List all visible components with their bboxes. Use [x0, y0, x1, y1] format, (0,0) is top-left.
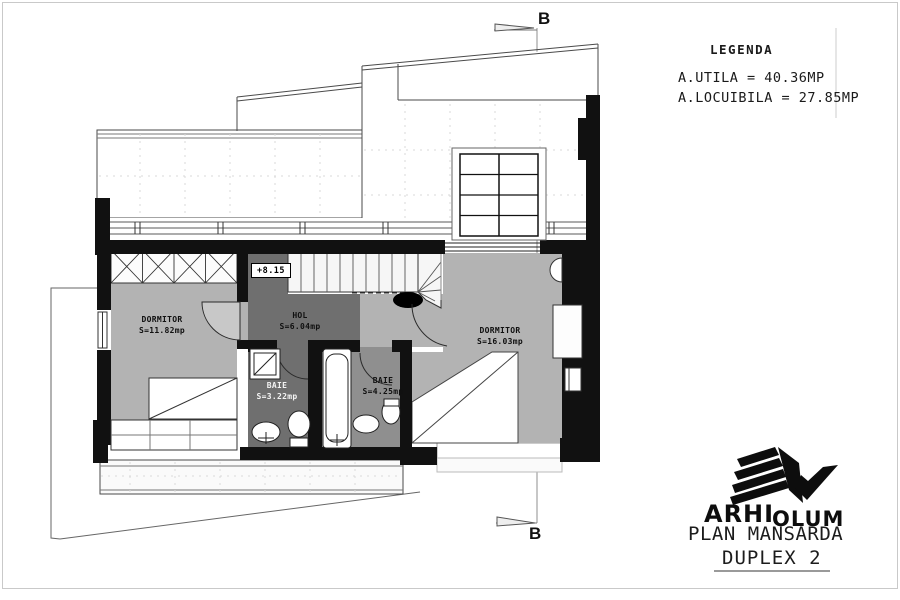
wardrobe: [111, 250, 237, 283]
legend-area-utila: A.UTILA = 40.36MP: [678, 70, 825, 86]
bathtub: [323, 349, 351, 448]
toilet-baie-1: [288, 411, 310, 447]
plan-subtitle: DUPLEX 2: [714, 547, 830, 572]
section-label-bottom: B: [529, 524, 541, 544]
legend-area-locuibila: A.LOCUIBILA = 27.85MP: [678, 90, 859, 106]
drawing-sheet: ARHI OLUM LEGENDA A.UTILA = 40.36MP A.LO…: [0, 0, 900, 600]
room-label-dormitor-right: DORMITOR S=16.03mp: [477, 325, 523, 347]
bottom-window-band: [111, 420, 237, 450]
desk: [553, 305, 582, 358]
room-label-baie-1: BAIE S=3.22mp: [257, 380, 298, 402]
bed-left: [149, 378, 237, 419]
stair-newel: [393, 292, 423, 308]
left-wall-window: [95, 310, 111, 350]
legend-title: LEGENDA: [710, 42, 773, 57]
room-label-hol: HOL S=6.04mp: [280, 310, 321, 332]
section-label-top: B: [538, 9, 550, 29]
level-marker: +8.15: [251, 263, 291, 278]
toilet-baie-2: [382, 399, 400, 424]
sink-baie-2: [353, 415, 379, 433]
eave-diagonal: [60, 492, 420, 539]
top-wall-window: [445, 243, 540, 251]
room-label-dormitor-left: DORMITOR S=11.82mp: [139, 314, 185, 336]
arhivolum-logo: ARHI OLUM: [704, 447, 844, 531]
shower: [250, 349, 280, 379]
plan-title: PLAN MANSARDA: [688, 523, 843, 545]
chair: [565, 368, 581, 391]
room-label-baie-2: BAIE S=4.25mp: [363, 375, 404, 397]
roof-window: [452, 148, 546, 240]
